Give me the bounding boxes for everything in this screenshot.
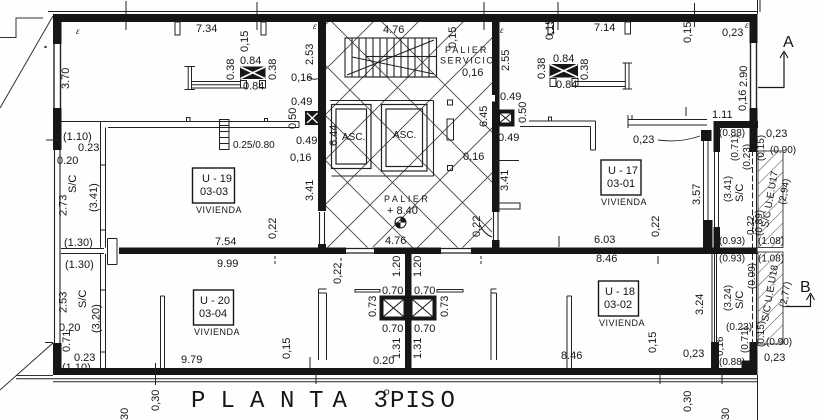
- svg-text:0,22: 0,22: [267, 218, 279, 239]
- svg-text:0.49: 0.49: [498, 132, 519, 144]
- svg-text:0.38: 0.38: [579, 59, 591, 80]
- svg-text:2.73: 2.73: [58, 195, 70, 216]
- svg-text:0.23: 0.23: [78, 142, 99, 154]
- svg-text:0.71: 0.71: [61, 331, 73, 352]
- svg-text:0.70: 0.70: [414, 285, 435, 297]
- svg-text:P: P: [390, 388, 404, 415]
- svg-text:0.73: 0.73: [367, 296, 379, 317]
- svg-text:(0.71): (0.71): [740, 327, 751, 353]
- svg-text:4.76: 4.76: [385, 235, 406, 247]
- svg-text:0,22: 0,22: [471, 216, 483, 237]
- svg-text:A: A: [250, 388, 265, 415]
- svg-text:0,23: 0,23: [722, 27, 743, 39]
- svg-text:+ 8.40: + 8.40: [387, 205, 418, 217]
- svg-text:2.53: 2.53: [58, 292, 70, 313]
- svg-text:1.31: 1.31: [412, 338, 424, 359]
- svg-text:0,23: 0,23: [764, 352, 785, 364]
- svg-text:0.50: 0.50: [287, 108, 299, 129]
- svg-text:0,15: 0,15: [647, 332, 659, 353]
- svg-text:ε: ε: [313, 21, 317, 31]
- svg-text:6.44: 6.44: [328, 125, 340, 146]
- svg-text:SERVICIO: SERVICIO: [440, 56, 495, 66]
- svg-text:PALIER: PALIER: [384, 194, 430, 204]
- svg-text:9.99: 9.99: [217, 258, 238, 270]
- svg-text:(0.89): (0.89): [754, 210, 765, 236]
- svg-text:3.70: 3.70: [60, 68, 72, 89]
- svg-text:(1.08): (1.08): [758, 236, 784, 247]
- svg-text:(0.88): (0.88): [719, 357, 745, 368]
- svg-text:(1.30): (1.30): [64, 237, 93, 249]
- svg-text:0,16: 0,16: [715, 336, 726, 356]
- svg-text:1.20: 1.20: [412, 256, 424, 277]
- svg-text:0,16: 0,16: [737, 90, 749, 111]
- svg-text:N: N: [280, 388, 294, 415]
- svg-text:0,15: 0,15: [447, 27, 459, 48]
- svg-text:(3.41): (3.41): [723, 176, 734, 202]
- svg-text:(0.23): (0.23): [742, 144, 753, 170]
- svg-text:0.38: 0.38: [536, 58, 548, 79]
- svg-text:(0.93): (0.93): [719, 236, 745, 247]
- svg-text:0,16: 0,16: [290, 152, 311, 164]
- svg-text:0.84: 0.84: [240, 55, 261, 67]
- svg-text:ε: ε: [500, 25, 504, 35]
- svg-text:0,30: 0,30: [682, 391, 694, 412]
- svg-text:30: 30: [119, 408, 131, 420]
- svg-text:P: P: [191, 388, 205, 415]
- svg-text:ε: ε: [745, 20, 749, 30]
- svg-text:3.24: 3.24: [694, 294, 706, 315]
- svg-text:U - 20: U - 20: [200, 295, 230, 307]
- svg-text:0.70: 0.70: [382, 323, 403, 335]
- svg-text:2.90: 2.90: [738, 66, 750, 87]
- svg-text:0,23: 0,23: [633, 134, 654, 146]
- svg-text:O: O: [441, 388, 455, 415]
- svg-text:0.84: 0.84: [556, 79, 577, 91]
- svg-text:03-04: 03-04: [199, 308, 227, 320]
- svg-text:U - 17: U - 17: [608, 165, 638, 177]
- svg-text:03-01: 03-01: [607, 178, 635, 190]
- svg-text:(0.09): (0.09): [747, 263, 758, 289]
- svg-text:03-02: 03-02: [604, 299, 632, 311]
- svg-text:0.49: 0.49: [291, 96, 312, 108]
- svg-text:6.45: 6.45: [478, 106, 490, 127]
- svg-text:0,30: 0,30: [150, 390, 162, 411]
- svg-text:0.20: 0.20: [57, 155, 78, 167]
- svg-text:(3.20): (3.20): [91, 304, 103, 333]
- svg-text:L: L: [221, 388, 235, 415]
- svg-text:8.46: 8.46: [596, 253, 617, 265]
- svg-text:(0.90): (0.90): [766, 337, 792, 348]
- svg-text:ASC.: ASC.: [342, 132, 365, 143]
- svg-text:I: I: [406, 388, 420, 415]
- svg-text:9.79: 9.79: [181, 354, 202, 366]
- svg-text:VIVIENDA: VIVIENDA: [194, 327, 240, 337]
- svg-text:4.76: 4.76: [383, 24, 404, 36]
- svg-text:T: T: [309, 388, 323, 415]
- svg-text:0,22: 0,22: [332, 263, 344, 284]
- svg-text:3.57: 3.57: [691, 184, 703, 205]
- svg-text:0,15: 0,15: [281, 338, 293, 359]
- svg-text:B: B: [800, 279, 811, 296]
- svg-text:0.70: 0.70: [382, 285, 403, 297]
- svg-text:0.70: 0.70: [414, 323, 435, 335]
- svg-text:(0.90): (0.90): [770, 145, 796, 156]
- svg-text:0,22: 0,22: [650, 216, 662, 237]
- svg-text:2.53: 2.53: [304, 44, 316, 65]
- svg-text:7.14: 7.14: [594, 22, 615, 34]
- svg-text:0.49: 0.49: [296, 135, 317, 147]
- svg-text:(0.93): (0.93): [719, 254, 745, 265]
- svg-text:1.31: 1.31: [391, 338, 403, 359]
- svg-text:S/C: S/C: [734, 291, 746, 309]
- svg-text:0.49: 0.49: [500, 91, 521, 103]
- svg-text:(3.41): (3.41): [88, 183, 100, 212]
- svg-text:(0.71): (0.71): [730, 135, 741, 161]
- svg-text:(0.15): (0.15): [756, 135, 767, 161]
- svg-text:VIVIENDA: VIVIENDA: [601, 197, 647, 207]
- svg-text:ASC.: ASC.: [393, 130, 416, 141]
- svg-text:U - 19: U - 19: [202, 173, 232, 185]
- svg-text:VIVIENDA: VIVIENDA: [599, 318, 645, 328]
- svg-text:0,23: 0,23: [766, 128, 787, 140]
- svg-text:03-03: 03-03: [200, 186, 228, 198]
- svg-text:U - 18: U - 18: [605, 286, 635, 298]
- svg-text:0,23: 0,23: [683, 348, 704, 360]
- svg-text:ε: ε: [76, 26, 80, 36]
- svg-text:0.38: 0.38: [267, 59, 279, 80]
- svg-text:0.84: 0.84: [553, 53, 574, 65]
- svg-text:(1.08): (1.08): [758, 254, 784, 265]
- svg-text:0,16: 0,16: [463, 151, 484, 163]
- svg-text:0,15: 0,15: [239, 31, 251, 52]
- svg-text:(1.10): (1.10): [62, 362, 91, 374]
- svg-text:0,16: 0,16: [462, 67, 483, 79]
- svg-text:0,15: 0,15: [544, 19, 556, 40]
- svg-text:A: A: [333, 388, 348, 415]
- svg-text:0.84: 0.84: [243, 81, 264, 93]
- svg-text:3.41: 3.41: [304, 180, 316, 201]
- svg-text:S/C: S/C: [67, 175, 79, 193]
- svg-text:(1.30): (1.30): [65, 259, 94, 271]
- svg-text:0.73: 0.73: [439, 296, 451, 317]
- svg-text:A: A: [783, 34, 794, 51]
- svg-text:0.25/0.80: 0.25/0.80: [233, 140, 275, 151]
- svg-text:0.38: 0.38: [225, 59, 237, 80]
- svg-text:2.55: 2.55: [500, 50, 512, 71]
- svg-text:30: 30: [720, 408, 732, 420]
- svg-text:3.41: 3.41: [499, 170, 511, 191]
- svg-text:1.20: 1.20: [391, 256, 403, 277]
- svg-text:VIVIENDA: VIVIENDA: [196, 205, 242, 215]
- svg-text:(3.24): (3.24): [723, 285, 734, 311]
- svg-text:S: S: [421, 388, 435, 415]
- svg-text:0,15: 0,15: [682, 22, 694, 43]
- svg-text:7.34: 7.34: [196, 23, 217, 35]
- svg-text:S/C: S/C: [734, 184, 746, 202]
- svg-text:8.46: 8.46: [561, 350, 582, 362]
- svg-text:0,16: 0,16: [291, 72, 312, 84]
- svg-text:0.50: 0.50: [517, 102, 529, 123]
- svg-text:S/C: S/C: [77, 290, 89, 308]
- svg-text:6.03: 6.03: [594, 234, 615, 246]
- svg-text:7.54: 7.54: [215, 236, 236, 248]
- svg-text:1.11: 1.11: [712, 109, 733, 121]
